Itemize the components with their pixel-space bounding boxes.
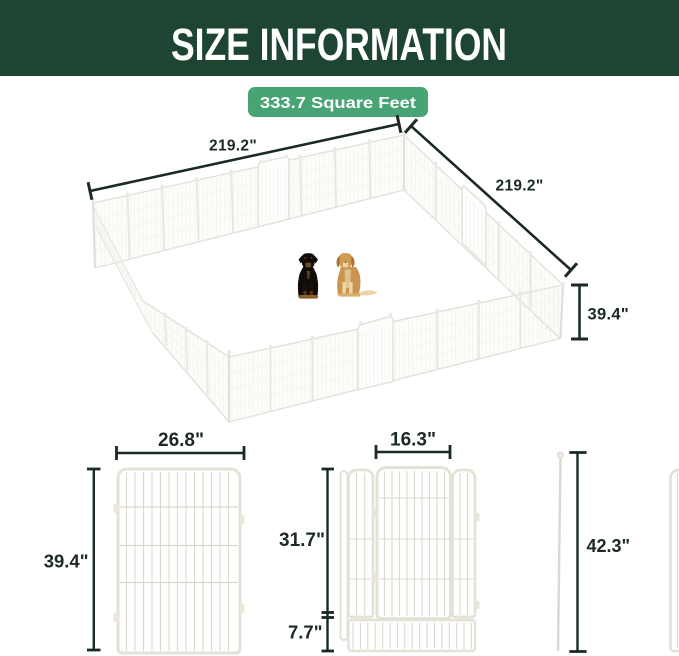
svg-text:39.4": 39.4" bbox=[588, 306, 629, 324]
svg-text:26.8": 26.8" bbox=[158, 430, 204, 451]
svg-text:31.7": 31.7" bbox=[279, 530, 325, 551]
svg-text:39.4": 39.4" bbox=[44, 551, 89, 572]
svg-text:7.7": 7.7" bbox=[288, 622, 323, 643]
svg-text:219.2": 219.2" bbox=[496, 178, 544, 195]
svg-text:42.3": 42.3" bbox=[587, 536, 631, 556]
svg-text:333.7 Square Feet: 333.7 Square Feet bbox=[260, 95, 416, 112]
svg-text:SIZE INFORMATION: SIZE INFORMATION bbox=[171, 19, 507, 70]
svg-text:16.3": 16.3" bbox=[390, 430, 436, 451]
svg-text:219.2": 219.2" bbox=[209, 138, 257, 155]
